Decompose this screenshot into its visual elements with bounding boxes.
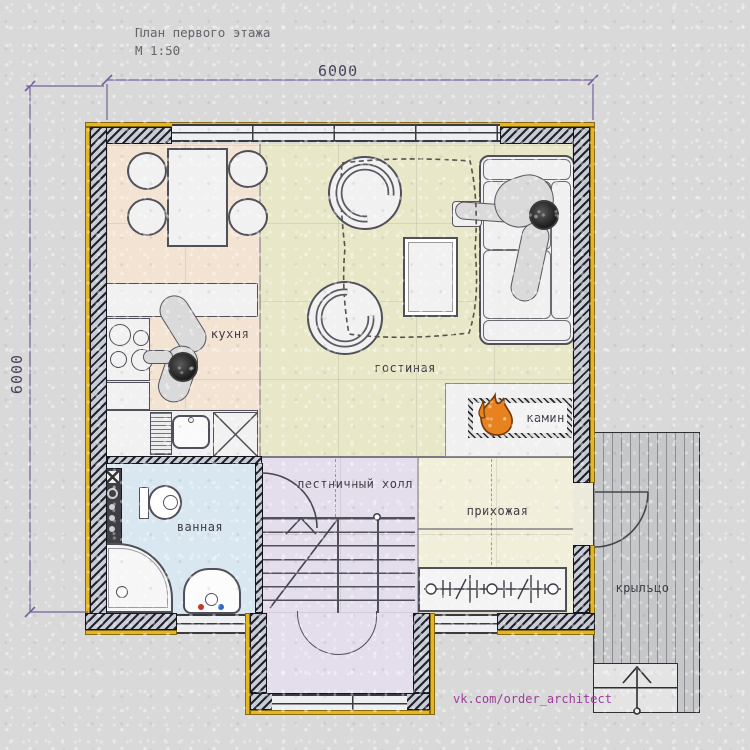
entrance-door bbox=[595, 492, 648, 547]
armchair-back bbox=[319, 292, 371, 344]
linework-overlay: 6000 6000 bbox=[0, 0, 750, 750]
watermark: vk.com/order_architect bbox=[453, 692, 612, 706]
dimension-lines bbox=[25, 75, 598, 617]
hallway-label: прихожая bbox=[435, 504, 560, 518]
drawing-scale: М 1:50 bbox=[135, 42, 270, 60]
dimension-top-value: 6000 bbox=[318, 62, 358, 80]
kitchen-label: кухня bbox=[180, 327, 280, 341]
dimension-left-value: 6000 bbox=[8, 354, 26, 394]
drawing-title: План первого этажа bbox=[135, 24, 270, 42]
bathroom-label: ванная bbox=[145, 520, 255, 534]
wardrobe-hanger-rail bbox=[424, 575, 561, 603]
fireplace-label: камин bbox=[518, 411, 573, 425]
stair-hall-label: лестничный холл bbox=[275, 477, 435, 491]
floor-plan-canvas: камин bbox=[0, 0, 750, 750]
living-room-label: гостиная bbox=[350, 361, 460, 375]
armchair-back bbox=[339, 167, 391, 219]
stair-direction-marks bbox=[270, 514, 380, 608]
porch-label: крыльцо bbox=[600, 581, 685, 595]
cabinet-cross-lines bbox=[214, 413, 257, 456]
rug-outline bbox=[341, 159, 477, 337]
title-block: План первого этажа М 1:50 bbox=[135, 24, 270, 60]
up-arrow-icon bbox=[623, 667, 651, 714]
